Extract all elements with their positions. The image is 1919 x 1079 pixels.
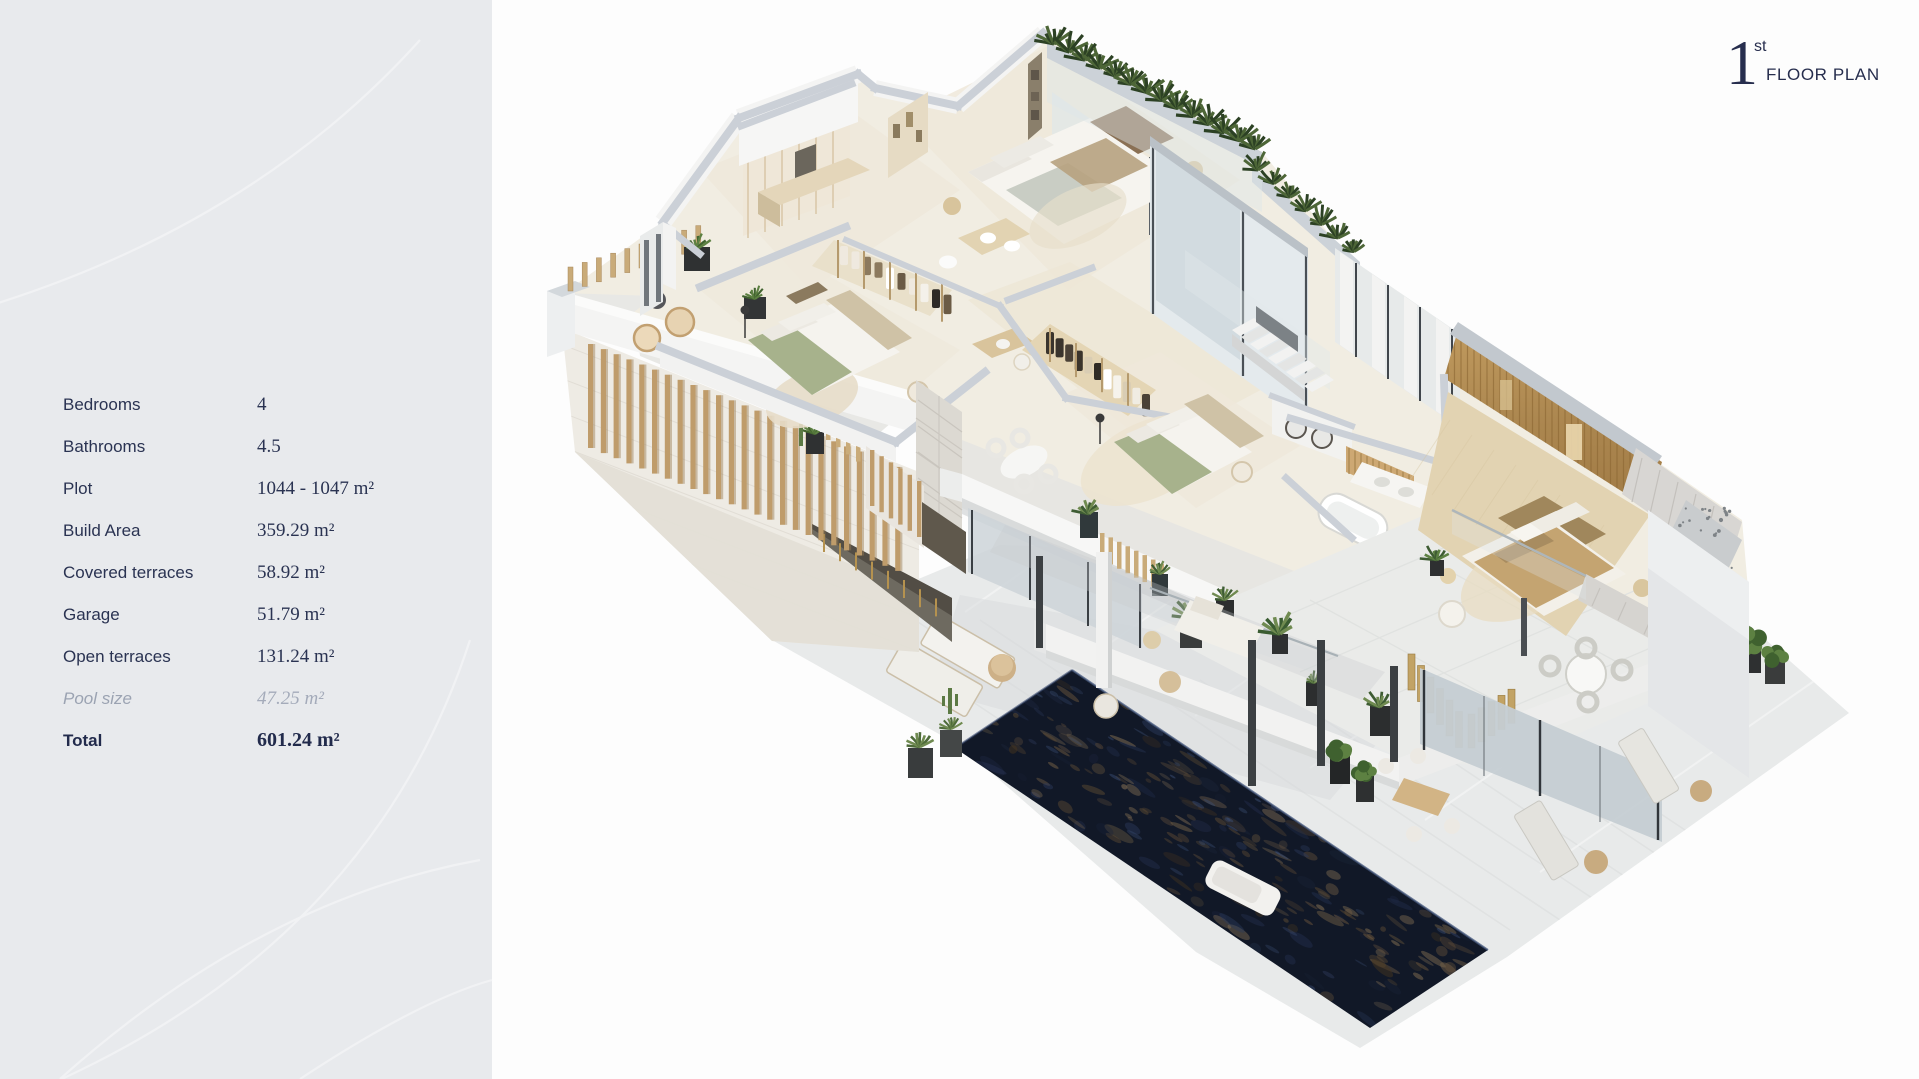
svg-text:Pool size: Pool size: [63, 689, 132, 708]
svg-text:359.29 m²: 359.29 m²: [257, 520, 335, 541]
svg-text:4.5: 4.5: [257, 436, 281, 457]
svg-text:4: 4: [257, 394, 267, 415]
svg-text:601.24 m²: 601.24 m²: [257, 729, 340, 751]
svg-text:Bathrooms: Bathrooms: [63, 437, 145, 456]
svg-text:Garage: Garage: [63, 605, 120, 624]
svg-text:FLOOR PLAN: FLOOR PLAN: [1766, 65, 1880, 84]
svg-text:58.92 m²: 58.92 m²: [257, 562, 325, 583]
svg-text:51.79 m²: 51.79 m²: [257, 604, 325, 625]
svg-text:st: st: [1754, 38, 1767, 55]
svg-text:Bedrooms: Bedrooms: [63, 395, 140, 414]
svg-text:Build Area: Build Area: [63, 521, 141, 540]
svg-text:Covered terraces: Covered terraces: [63, 563, 193, 582]
svg-text:47.25 m²: 47.25 m²: [257, 688, 324, 709]
svg-text:Total: Total: [63, 731, 102, 750]
svg-text:Plot: Plot: [63, 479, 93, 498]
svg-text:1044 - 1047 m²: 1044 - 1047 m²: [257, 478, 374, 499]
svg-text:Open terraces: Open terraces: [63, 647, 171, 666]
svg-text:131.24 m²: 131.24 m²: [257, 646, 335, 667]
